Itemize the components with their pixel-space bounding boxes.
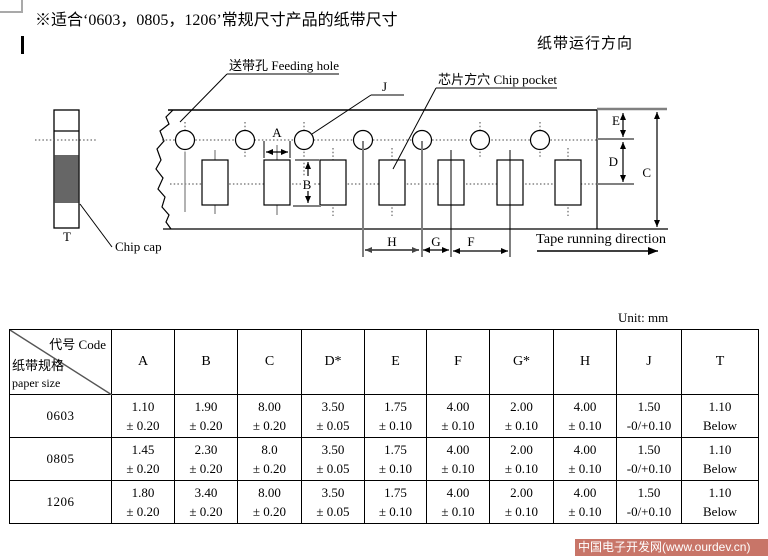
col-header: H [554, 330, 617, 395]
corner-papersize-en: paper size [12, 376, 60, 391]
dim-label-b: B [303, 177, 312, 192]
tape-body [156, 110, 668, 229]
tape-cross-section: T Chip cap [35, 110, 162, 254]
site-watermark: 中国电子开发网(www.ourdev.cn) [575, 539, 768, 556]
table-cell: 1.45± 0.20 [112, 438, 175, 481]
corner-papersize-cn: 纸带规格 [12, 355, 64, 374]
table-cell: 1.50-0/+0.10 [617, 395, 682, 438]
chip-pocket [379, 160, 405, 205]
dim-label-e: E [612, 113, 620, 128]
col-header: B [175, 330, 238, 395]
row-code: 0603 [10, 395, 112, 438]
table-cell: 1.50-0/+0.10 [617, 438, 682, 481]
unit-label: Unit: mm [618, 310, 668, 326]
feeding-hole-callout: 送带孔 Feeding hole [180, 58, 339, 122]
chip-cap-fill [55, 155, 79, 203]
table-row: 0603 1.10± 0.20 1.90± 0.20 8.00± 0.20 3.… [10, 395, 759, 438]
table-cell: 3.50± 0.05 [302, 481, 365, 524]
chip-cap-leader [80, 204, 112, 247]
table-cell: 1.75± 0.10 [365, 481, 427, 524]
row-code: 0805 [10, 438, 112, 481]
table-cell: 2.00± 0.10 [490, 481, 554, 524]
table-cell: 1.80± 0.20 [112, 481, 175, 524]
table-cell: 1.75± 0.10 [365, 395, 427, 438]
table-cell: 2.00± 0.10 [490, 438, 554, 481]
chip-pocket [320, 160, 346, 205]
row-code: 1206 [10, 481, 112, 524]
chip-cap-label: Chip cap [115, 239, 162, 254]
table-corner-cell: 代号 Code 纸带规格 paper size [10, 330, 112, 395]
col-header: C [238, 330, 302, 395]
table-cell: 3.40± 0.20 [175, 481, 238, 524]
feeding-hole [295, 131, 314, 150]
table-cell: 4.00± 0.10 [554, 438, 617, 481]
tape-direction: Tape running direction [536, 232, 666, 251]
dim-label-a: A [272, 125, 282, 140]
dim-label-f: F [467, 234, 474, 249]
table-cell: 4.00± 0.10 [427, 438, 490, 481]
table-cell: 8.00± 0.20 [238, 395, 302, 438]
table-cell: 1.10Below [682, 481, 759, 524]
feeding-hole [471, 131, 490, 150]
table-cell: 4.00± 0.10 [427, 481, 490, 524]
table-row: 1206 1.80± 0.20 3.40± 0.20 8.00± 0.20 3.… [10, 481, 759, 524]
chip-pocket [555, 160, 581, 205]
tape-direction-label-en: Tape running direction [536, 232, 666, 247]
table-cell: 1.50-0/+0.10 [617, 481, 682, 524]
feeding-hole [236, 131, 255, 150]
col-header: J [617, 330, 682, 395]
table-cell: 2.00± 0.10 [490, 395, 554, 438]
col-header: E [365, 330, 427, 395]
dim-label-t: T [63, 229, 71, 244]
dim-b: B [293, 160, 321, 206]
dim-label-h: H [387, 234, 396, 249]
table-cell: 4.00± 0.10 [554, 481, 617, 524]
feeding-hole [531, 131, 550, 150]
table-row: 0805 1.45± 0.20 2.30± 0.20 8.0± 0.20 3.5… [10, 438, 759, 481]
col-header: D* [302, 330, 365, 395]
dim-edc: E D C [597, 109, 667, 227]
dimension-table: 代号 Code 纸带规格 paper size A B C D* E F G* … [9, 329, 759, 524]
table-cell: 1.10Below [682, 395, 759, 438]
chip-pocket-label: 芯片方穴 Chip pocket [438, 72, 557, 87]
table-header-row: 代号 Code 纸带规格 paper size A B C D* E F G* … [10, 330, 759, 395]
table-cell: 1.75± 0.10 [365, 438, 427, 481]
table-cell: 1.90± 0.20 [175, 395, 238, 438]
feeding-hole [176, 131, 195, 150]
dim-label-c: C [642, 165, 651, 180]
table-cell: 1.10± 0.20 [112, 395, 175, 438]
col-header: F [427, 330, 490, 395]
col-header: A [112, 330, 175, 395]
table-cell: 2.30± 0.20 [175, 438, 238, 481]
chip-pockets [185, 145, 581, 216]
torn-edge [156, 110, 173, 229]
feeding-hole-label: 送带孔 Feeding hole [229, 58, 339, 73]
j-callout: J [312, 79, 404, 134]
table-cell: 3.50± 0.05 [302, 438, 365, 481]
dim-label-d: D [609, 154, 618, 169]
chip-pocket [264, 160, 290, 205]
chip-pocket-callout: 芯片方穴 Chip pocket [393, 72, 557, 169]
table-cell: 1.10Below [682, 438, 759, 481]
table-cell: 3.50± 0.05 [302, 395, 365, 438]
chip-pocket [202, 160, 228, 205]
tape-diagram: T Chip cap [0, 0, 768, 300]
dim-label-g: G [431, 234, 440, 249]
table-cell: 8.00± 0.20 [238, 481, 302, 524]
col-header: T [682, 330, 759, 395]
table-cell: 4.00± 0.10 [427, 395, 490, 438]
dim-label-j: J [382, 79, 387, 94]
col-header: G* [490, 330, 554, 395]
table-cell: 4.00± 0.10 [554, 395, 617, 438]
corner-code-label: 代号 Code [49, 334, 106, 353]
table-cell: 8.0± 0.20 [238, 438, 302, 481]
